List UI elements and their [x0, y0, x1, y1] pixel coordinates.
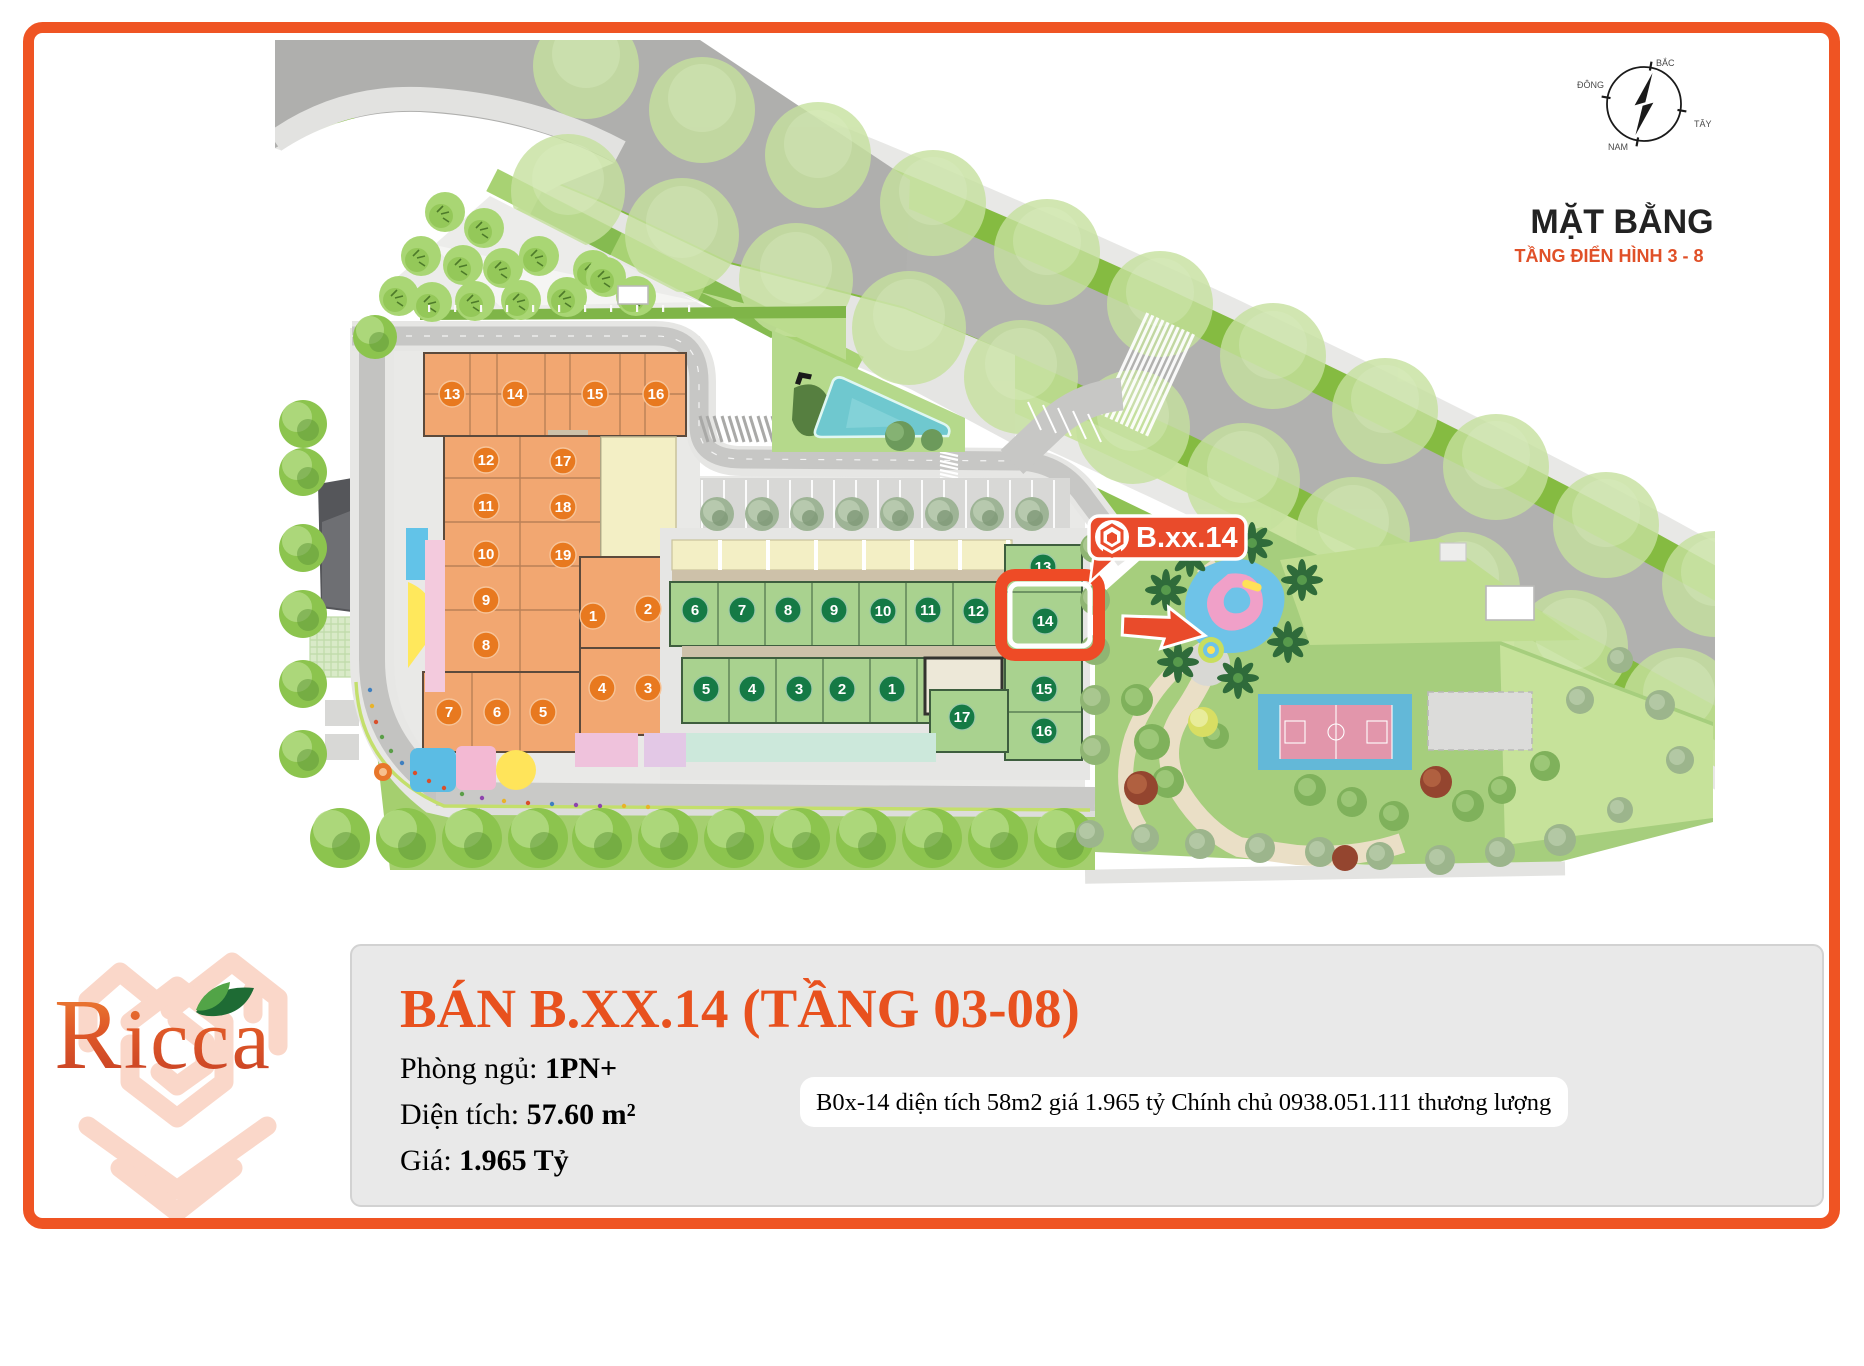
svg-text:11: 11 — [478, 498, 494, 515]
svg-text:1: 1 — [888, 681, 896, 698]
svg-text:12: 12 — [478, 452, 495, 469]
svg-text:NAM: NAM — [1608, 142, 1628, 152]
svg-text:BÁN B.XX.14 (TẦNG 03-08): BÁN B.XX.14 (TẦNG 03-08) — [400, 978, 1080, 1039]
svg-text:ĐÔNG: ĐÔNG — [1577, 80, 1604, 90]
svg-text:16: 16 — [648, 386, 665, 403]
svg-text:Giá: 1.965 Tỷ: Giá: 1.965 Tỷ — [400, 1144, 569, 1177]
svg-text:5: 5 — [539, 704, 547, 721]
svg-text:9: 9 — [830, 602, 838, 619]
svg-text:B.xx.14: B.xx.14 — [1136, 522, 1238, 554]
svg-text:12: 12 — [968, 603, 985, 620]
svg-text:15: 15 — [587, 386, 604, 403]
svg-text:6: 6 — [691, 602, 699, 619]
svg-text:Phòng ngủ: 1PN+: Phòng ngủ: 1PN+ — [400, 1052, 617, 1085]
svg-text:2: 2 — [644, 601, 652, 618]
svg-text:Diện tích: 57.60 m²: Diện tích: 57.60 m² — [400, 1098, 636, 1131]
svg-text:BẮC: BẮC — [1656, 58, 1675, 68]
svg-text:3: 3 — [644, 680, 652, 697]
svg-text:5: 5 — [702, 681, 710, 698]
svg-text:10: 10 — [875, 603, 892, 620]
svg-text:14: 14 — [507, 386, 524, 403]
svg-text:16: 16 — [1036, 723, 1053, 740]
svg-text:1: 1 — [589, 608, 597, 625]
svg-text:TẦNG ĐIỂN HÌNH 3 - 8: TẦNG ĐIỂN HÌNH 3 - 8 — [1514, 245, 1703, 266]
svg-text:7: 7 — [445, 704, 453, 721]
svg-text:13: 13 — [444, 386, 461, 403]
svg-text:17: 17 — [555, 453, 572, 470]
svg-text:10: 10 — [478, 546, 495, 563]
svg-text:7: 7 — [738, 602, 746, 619]
svg-text:14: 14 — [1037, 613, 1054, 630]
svg-text:6: 6 — [493, 704, 501, 721]
svg-text:15: 15 — [1036, 681, 1053, 698]
svg-text:11: 11 — [920, 602, 936, 619]
svg-text:8: 8 — [784, 602, 792, 619]
svg-text:19: 19 — [555, 547, 572, 564]
svg-text:8: 8 — [482, 637, 490, 654]
svg-text:3: 3 — [795, 681, 803, 698]
svg-text:B0x-14 diện tích 58m2 giá 1.96: B0x-14 diện tích 58m2 giá 1.965 tỷ Chính… — [816, 1089, 1551, 1116]
svg-text:2: 2 — [838, 681, 846, 698]
svg-text:4: 4 — [598, 680, 607, 697]
svg-text:4: 4 — [748, 681, 757, 698]
svg-text:17: 17 — [954, 709, 971, 726]
svg-text:MẶT BẰNG: MẶT BẰNG — [1530, 203, 1713, 241]
svg-text:9: 9 — [482, 592, 490, 609]
svg-text:TÂY: TÂY — [1694, 119, 1712, 129]
svg-text:18: 18 — [555, 499, 572, 516]
